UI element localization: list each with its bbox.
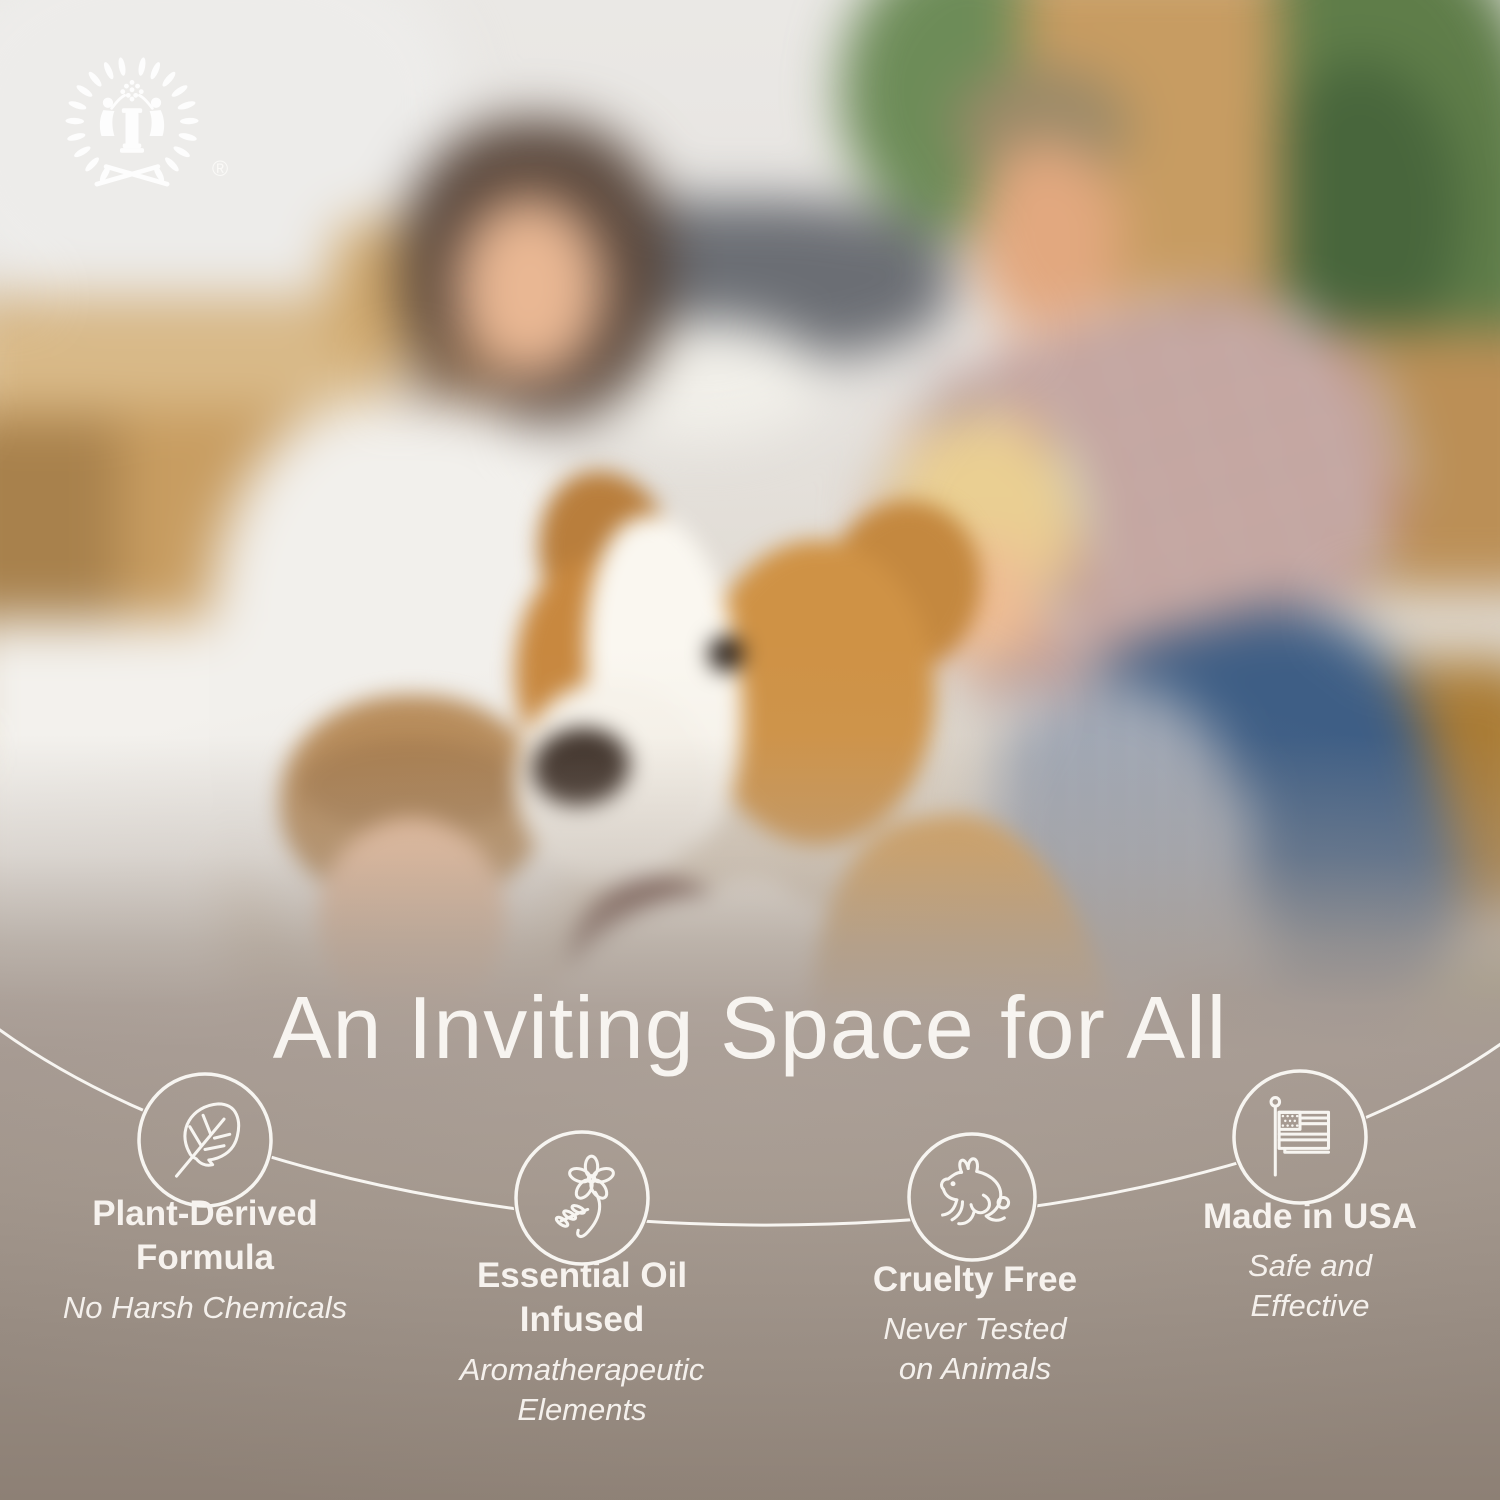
flower-icon	[555, 1156, 615, 1236]
feature-made-in-usa: Made in USA Safe and Effective	[1130, 1195, 1490, 1326]
feature-cruelty-free: Cruelty Free Never Tested on Animals	[795, 1258, 1155, 1389]
feature-plant-derived: Plant-Derived Formula No Harsh Chemicals	[25, 1192, 385, 1328]
product-infographic: ® An Inviting Space for All	[0, 0, 1500, 1500]
feature-circle-4	[1234, 1071, 1366, 1203]
feature-title: Made in USA	[1130, 1195, 1490, 1239]
feature-subtitle: No Harsh Chemicals	[25, 1288, 385, 1328]
feature-subtitle: Safe and Effective	[1130, 1246, 1490, 1325]
feature-title: Essential Oil Infused	[402, 1254, 762, 1343]
feature-title: Cruelty Free	[795, 1258, 1155, 1302]
feature-title: Plant-Derived Formula	[25, 1192, 385, 1281]
feature-circle-3	[909, 1134, 1035, 1260]
feature-essential-oil: Essential Oil Infused Aromatherapeutic E…	[402, 1254, 762, 1429]
feature-subtitle: Never Tested on Animals	[795, 1309, 1155, 1388]
feature-subtitle: Aromatherapeutic Elements	[402, 1350, 762, 1429]
leaf-icon	[177, 1104, 239, 1176]
